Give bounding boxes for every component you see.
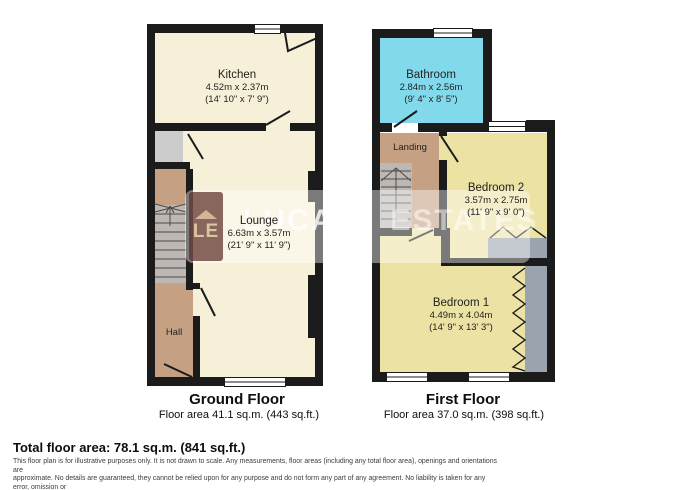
- lounge-door-leaf: [201, 288, 215, 316]
- first-floor-title: First Floor: [363, 391, 563, 408]
- lounge-label: Lounge 6.63m x 3.57m (21' 9" x 11' 9"): [184, 214, 334, 251]
- room-imperial: (14' 9" x 13' 3"): [386, 322, 536, 334]
- bedroom1-label: Bedroom 1 4.49m x 4.04m (14' 9" x 13' 3"…: [386, 296, 536, 333]
- landing-label: Landing: [375, 142, 445, 154]
- bathroom-label: Bathroom 2.84m x 2.56m (9' 4" x 8' 5"): [356, 68, 506, 105]
- bedroom2-label: Bedroom 2 3.57m x 2.75m (11' 9" x 9' 0"): [421, 181, 571, 218]
- ground-floor-stair-treads: [155, 204, 186, 277]
- room-name: Hall: [149, 327, 199, 339]
- hall-label: Hall: [149, 327, 199, 339]
- cupboard-door-leaf: [188, 134, 203, 159]
- room-metric: 4.49m x 4.04m: [386, 310, 536, 322]
- room-metric: 6.63m x 3.57m: [184, 228, 334, 240]
- bathroom-door-leaf: [394, 111, 417, 127]
- first-floor-area: Floor area 37.0 sq.m. (398 sq.ft.): [364, 409, 564, 421]
- room-imperial: (9' 4" x 8' 5"): [356, 94, 506, 106]
- disclaimer-text: This floor plan is for illustrative purp…: [13, 458, 503, 490]
- room-metric: 3.57m x 2.75m: [421, 195, 571, 207]
- room-imperial: (21' 9" x 11' 9"): [184, 240, 334, 252]
- back-door-leaf: [285, 33, 317, 51]
- room-metric: 2.84m x 2.56m: [356, 82, 506, 94]
- room-name: Bathroom: [356, 68, 506, 82]
- disclaimer-line: approximate. No details are guaranteed, …: [13, 475, 503, 490]
- kitchen-door-leaf: [266, 111, 290, 125]
- room-name: Bedroom 2: [421, 181, 571, 195]
- kitchen-label: Kitchen 4.52m x 2.37m (14' 10" x 7' 9"): [162, 68, 312, 105]
- ground-floor-title: Ground Floor: [137, 391, 337, 408]
- room-name: Kitchen: [162, 68, 312, 82]
- room-name: Bedroom 1: [386, 296, 536, 310]
- front-door-leaf: [164, 364, 192, 377]
- room-name: Lounge: [184, 214, 334, 228]
- room-metric: 4.52m x 2.37m: [162, 82, 312, 94]
- total-floor-area: Total floor area: 78.1 sq.m. (841 sq.ft.…: [13, 440, 245, 455]
- ground-floor-area: Floor area 41.1 sq.m. (443 sq.ft.): [139, 409, 339, 421]
- room-imperial: (14' 10" x 7' 9"): [162, 94, 312, 106]
- disclaimer-line: This floor plan is for illustrative purp…: [13, 458, 503, 475]
- room-imperial: (11' 9" x 9' 0"): [421, 207, 571, 219]
- room-name: Landing: [375, 142, 445, 154]
- floor-plan-page: LE LUCASESTATES Kitchen 4.52m x 2.37m (1…: [0, 0, 700, 490]
